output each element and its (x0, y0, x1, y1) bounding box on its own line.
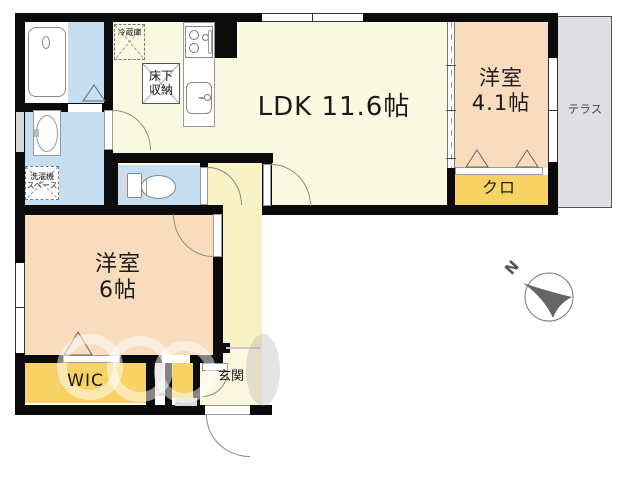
closet-label: クロ (455, 179, 543, 198)
ldk-door-leaf (263, 164, 271, 206)
storage-opening (162, 355, 190, 363)
window-western6-left (15, 263, 25, 353)
terrace-label: テラス (558, 103, 612, 117)
underfloor-storage-label: 床下 収納 (142, 69, 180, 97)
ldk-label: LDK 11.6帖 (234, 92, 434, 123)
wall-ldk-bottom (262, 205, 558, 215)
bath-door-opening (68, 104, 102, 112)
folding-door-icon (515, 149, 539, 168)
closet-door-track (455, 167, 543, 175)
kitchen-stove (185, 26, 213, 58)
wall-kitchen-stub (215, 22, 237, 58)
vanity-sink (33, 110, 61, 156)
shoe-storage (155, 363, 165, 396)
washroom-door-leaf (104, 110, 113, 150)
entrance-step-line (226, 347, 260, 349)
toilet-seat-line (146, 178, 147, 196)
bathtub (28, 27, 66, 97)
toilet-door-leaf (200, 167, 208, 205)
window-tick (312, 13, 313, 22)
entrance-label: 玄関 (205, 369, 257, 384)
window-washroom (16, 112, 24, 152)
wall-closet-left (447, 168, 455, 215)
wic-door-track (63, 355, 120, 363)
wic-label: WIC (25, 371, 146, 391)
western6-door-leaf (213, 214, 222, 257)
refrigerator-label: 冷蔵庫 (114, 28, 145, 37)
wall-storage-b (165, 363, 172, 405)
western-room-41-label: 洋室 4.1帖 (455, 66, 547, 116)
folding-door-icon (82, 84, 106, 102)
window-tick (15, 307, 25, 308)
kitchen-sink (186, 82, 212, 114)
front-door-arc (206, 415, 250, 457)
folding-door-icon (63, 331, 93, 356)
entrance-step (175, 398, 197, 406)
toilet-panel (121, 171, 126, 199)
wall-ldk-hall (104, 153, 273, 163)
wall-toilet-left (104, 163, 118, 207)
washer-space-label: 洗濯機 スペース (25, 172, 59, 191)
floor-plan: 洗濯機 スペース 冷蔵庫 床下 収納 N (0, 0, 640, 480)
sliding-door-partition (447, 22, 455, 168)
wall-storage-a (146, 355, 155, 415)
folding-door-icon (465, 149, 489, 168)
toilet-tank (127, 173, 142, 198)
western-room-6-label: 洋室 6帖 (50, 252, 186, 304)
room-mini-storage (172, 363, 193, 398)
window-tick (548, 110, 558, 111)
front-door-opening (205, 405, 250, 415)
